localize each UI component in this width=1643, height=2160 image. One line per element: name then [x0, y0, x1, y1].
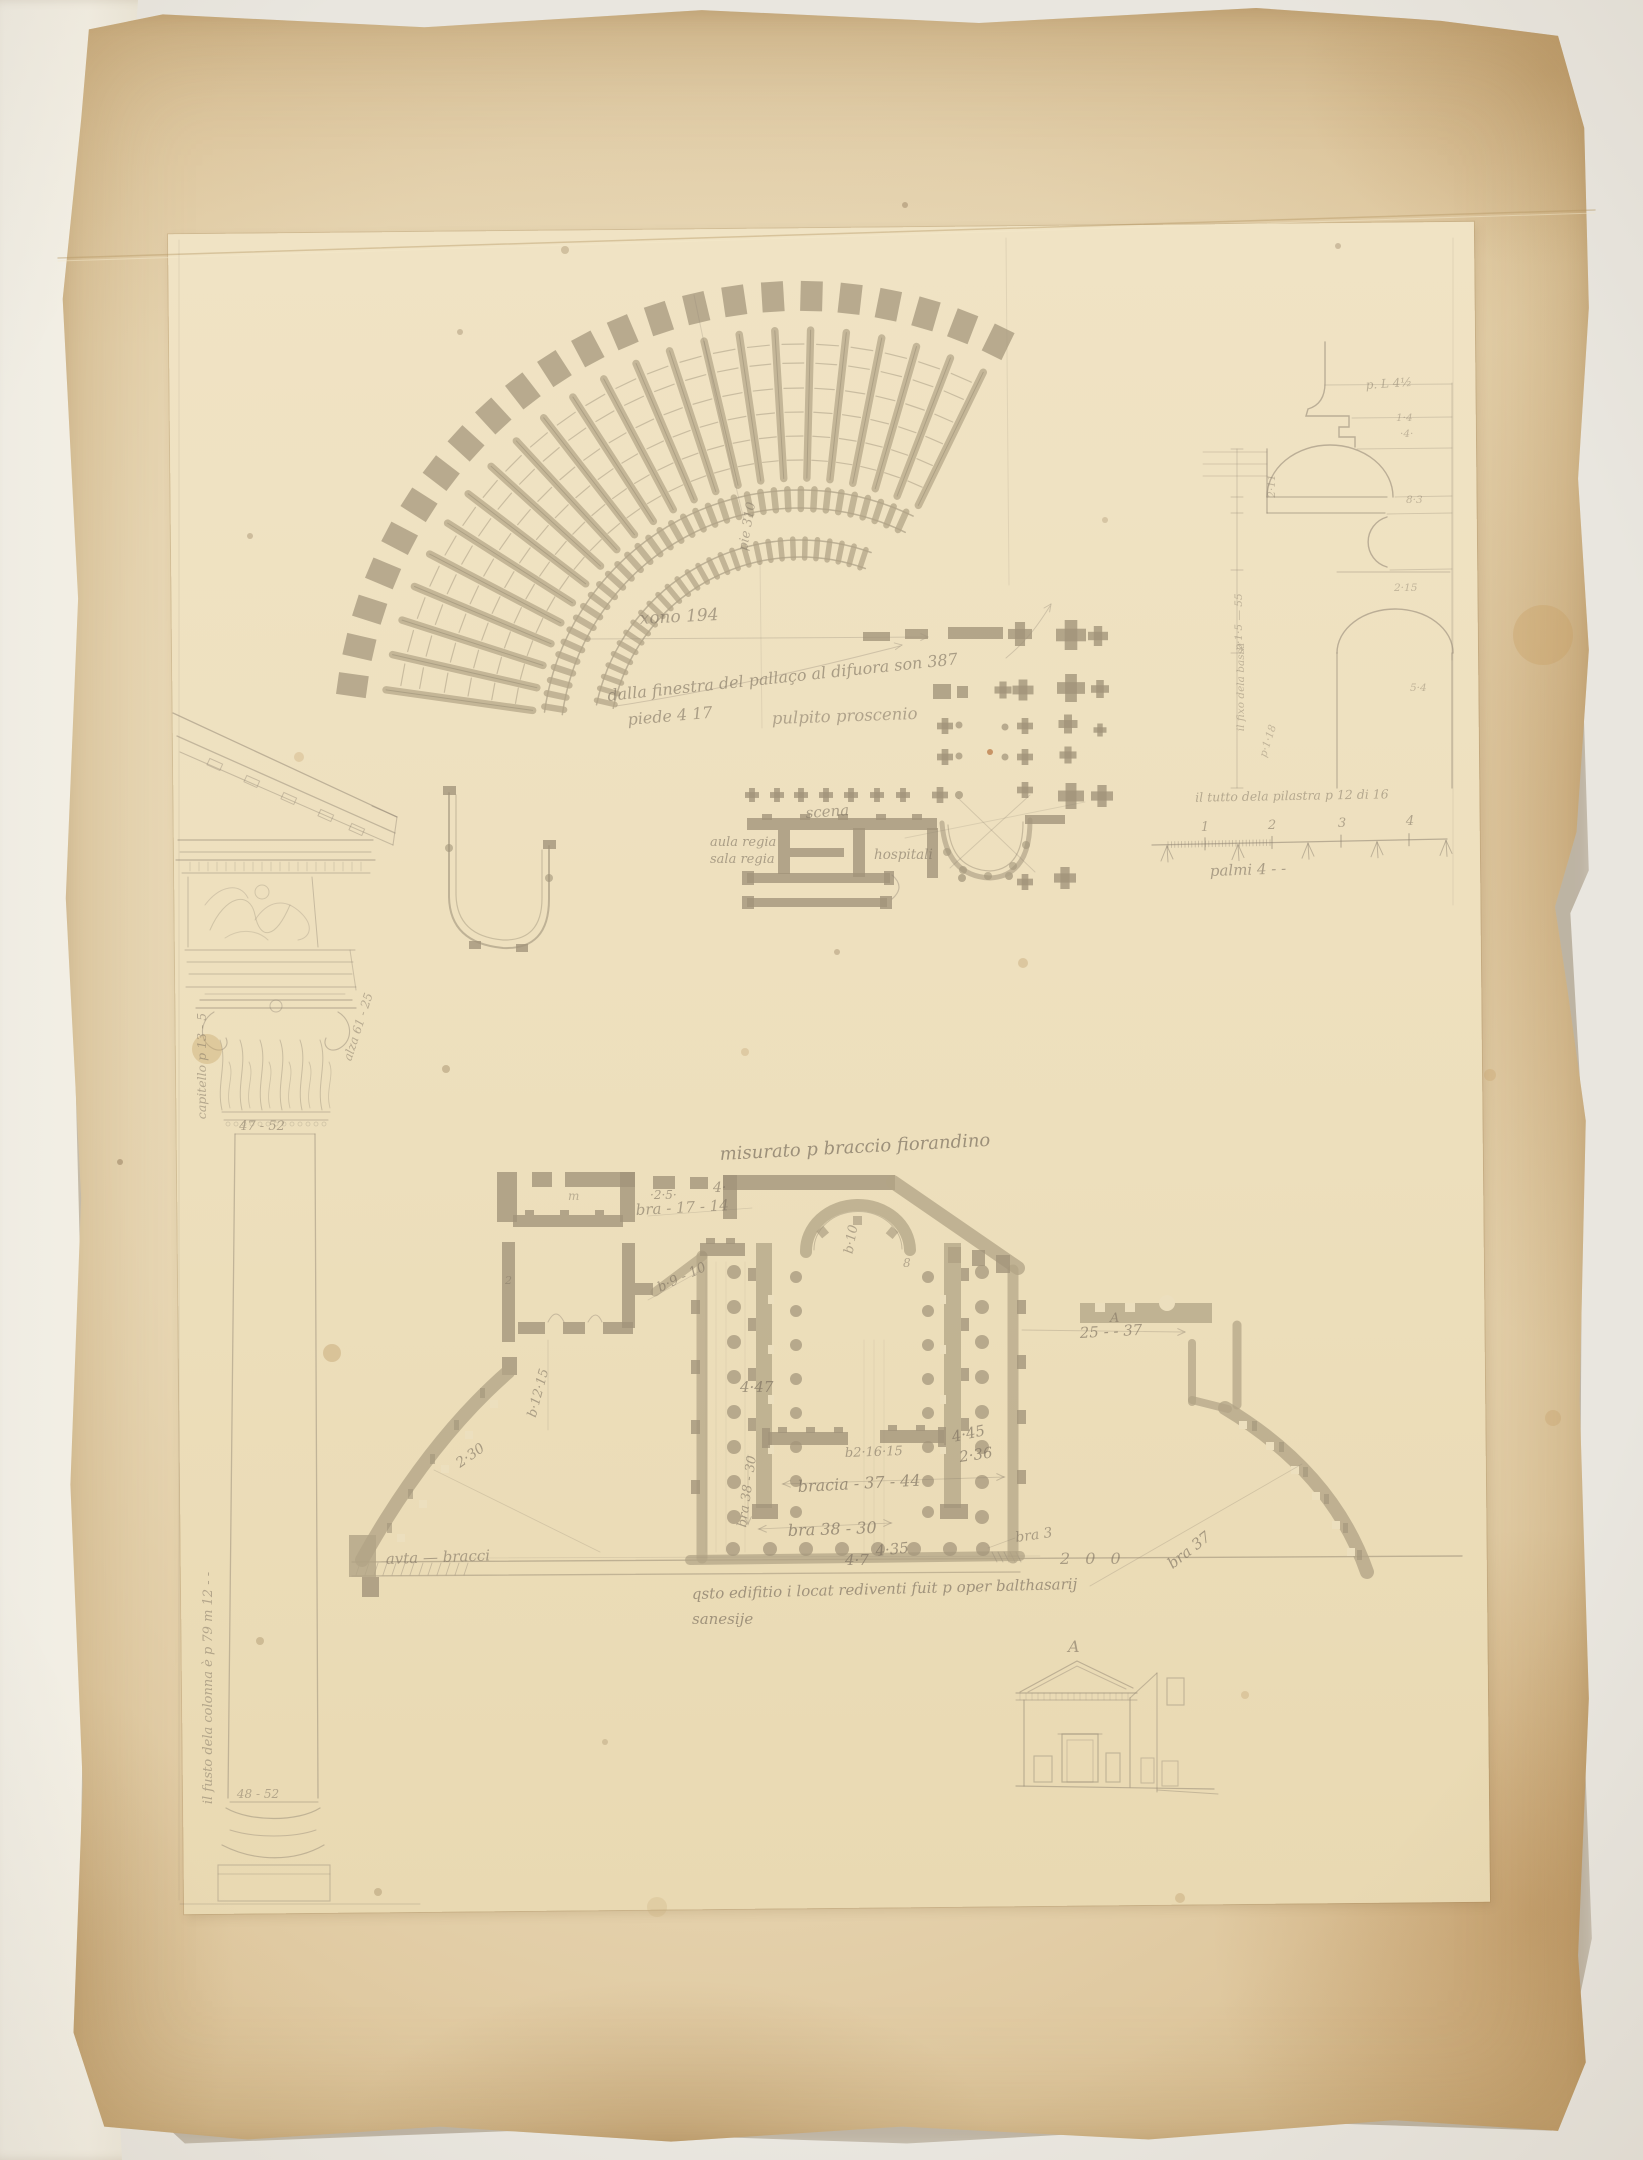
note-finestra: dalla finestra del pallaço al difuora so…: [606, 649, 959, 705]
note-fusto: il fusto dela colonna è p 79 m 12 - -: [201, 1572, 216, 1804]
colophon-line-1: qsto edifitio i locat rediventi fuit p o…: [692, 1575, 1078, 1603]
profile-top-dim: p. L 4½: [1365, 375, 1412, 392]
colophon-line-2: sanesije: [692, 1610, 753, 1628]
note-misurato: misurato p braccio fiorandino: [719, 1130, 991, 1165]
theatre-complex-plan: [349, 1172, 1462, 1597]
dim-47: 4·7: [844, 1551, 869, 1569]
scale-tick-2: 2: [1267, 818, 1276, 833]
dim-236: 2·36: [957, 1443, 994, 1466]
note-scena: scena: [805, 801, 850, 822]
dim-bracia3744: bracia - 37 - 44: [797, 1471, 921, 1496]
note-hospitali: hospitali: [874, 847, 933, 863]
dim-25: ·2·5·: [650, 1188, 677, 1202]
profile-dim-1: 1·4: [1396, 412, 1413, 424]
profile-dim-left2: il fixo dela bassa: [1235, 643, 1247, 732]
palmi-scale-bar: [1152, 834, 1452, 862]
profile-dim-left4: 2·11: [1266, 474, 1278, 498]
note-xono194: xono 194: [639, 605, 719, 629]
section-elevation-a: [1016, 1661, 1218, 1794]
note-capital-width: 47 - 52: [238, 1119, 285, 1134]
profile-dim-5: 5·4: [1410, 682, 1427, 694]
scale-tick-3: 3: [1338, 816, 1346, 831]
note-capitello: capitello p 13 - 5: [194, 1013, 209, 1119]
mark-m: m: [568, 1189, 579, 1203]
drawing-layer: pie 310 xono 194 dalla finestra del pall…: [0, 0, 1643, 2160]
dim-bra37: bra 37: [1164, 1527, 1215, 1572]
dim-4: 4·: [712, 1180, 726, 1196]
dim-447: 4·47: [739, 1378, 774, 1396]
note-aula-regia: aula regia: [710, 835, 776, 850]
profile-dim-left1: p·1·5 — 55: [1233, 593, 1245, 651]
profile-dim-3: 8·3: [1406, 494, 1423, 506]
mark-2: 2: [504, 1274, 512, 1287]
dim-b21615: b2·16·15: [845, 1444, 903, 1461]
dim-bra2537: 25 - - 37: [1078, 1321, 1143, 1342]
dim-200: 2 0 0: [1059, 1549, 1126, 1568]
profile-caption: il tutto dela pilastra p 12 di 16: [1195, 786, 1389, 804]
mark-8: 8: [903, 1256, 911, 1270]
note-avta-bracci: avta — bracci: [386, 1546, 491, 1568]
note-piede: piede 4 17: [627, 703, 714, 729]
dim-bra3830-h: bra 38 - 30: [787, 1518, 876, 1540]
profile-dim-4: 2·15: [1393, 582, 1418, 594]
foxing-stains: [117, 202, 1573, 1917]
note-pulpito: pulpito proscenio: [771, 704, 917, 728]
note-alza: alza 61 - 25: [341, 991, 376, 1062]
dim-bra3: bra 3: [1014, 1525, 1053, 1546]
paper-crease: [58, 210, 1595, 1900]
scale-label-palmi: palmi 4 - -: [1210, 859, 1287, 880]
profile-dim-left3: p·1·18: [1257, 723, 1279, 759]
dim-b10: b·10: [842, 1224, 862, 1255]
dim-435: 4·35: [874, 1539, 910, 1560]
dim-230: 2·30: [452, 1440, 488, 1472]
scale-tick-4: 4: [1405, 814, 1414, 829]
note-base-width: 48 - 52: [236, 1787, 279, 1801]
profile-dim-2: ·4·: [1400, 428, 1413, 440]
label-a-section: A: [1066, 1637, 1080, 1656]
note-sala-regia: sala regia: [710, 852, 775, 867]
u-shaped-structure: [443, 786, 556, 952]
scanned-page: pie 310 xono 194 dalla finestra del pall…: [0, 0, 1643, 2160]
scale-tick-1: 1: [1201, 820, 1209, 835]
